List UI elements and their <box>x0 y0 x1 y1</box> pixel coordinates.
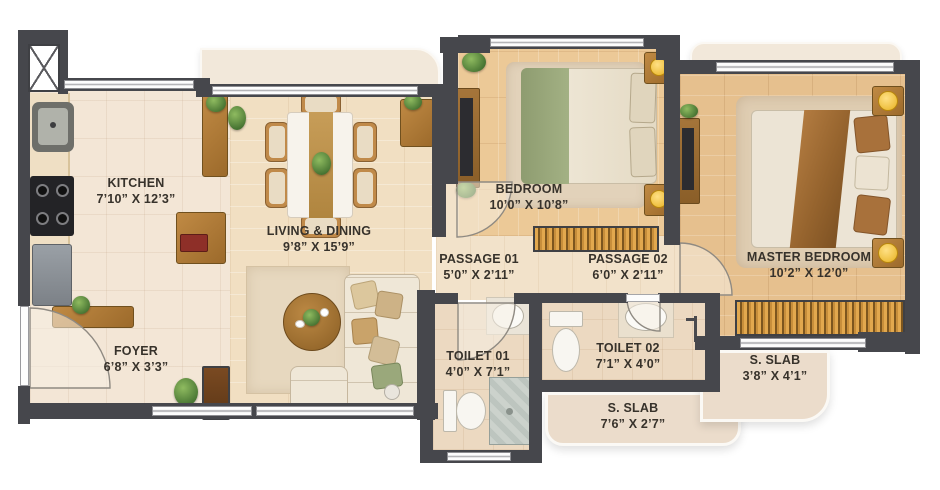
balcony-ledge-living <box>200 48 440 88</box>
dining-chair <box>353 168 377 208</box>
room-label-slab-bottom: S. SLAB 7’6” X 2’7” <box>567 401 699 433</box>
room-name: TOILET 01 <box>446 349 509 364</box>
wall <box>542 380 720 392</box>
stove-burner <box>56 212 69 225</box>
window-bedroom <box>490 38 644 47</box>
washbasin <box>492 303 524 329</box>
window-toilet1 <box>447 452 511 461</box>
shower-head-icon <box>686 318 696 321</box>
room-dims: 7’10” X 12’3” <box>96 192 175 207</box>
microwave <box>180 234 208 252</box>
plant-master <box>680 104 698 118</box>
room-dims: 10’0” X 10’8” <box>489 198 568 213</box>
sofa-pillow <box>374 290 404 320</box>
toilet-bowl <box>456 392 486 430</box>
room-name: PASSAGE 01 <box>439 252 519 267</box>
washbasin <box>625 303 667 331</box>
bed-blanket <box>521 68 569 184</box>
room-name: S. SLAB <box>750 353 801 368</box>
master-pillow <box>854 155 890 191</box>
window-living-bottom <box>256 406 414 416</box>
room-dims: 6’8” X 3’3” <box>104 360 169 375</box>
room-label-master: MASTER BEDROOM 10’2” X 12’0” <box>730 250 888 282</box>
room-name: FOYER <box>114 344 158 359</box>
fridge <box>32 244 72 306</box>
plant-coffee-table <box>303 309 320 326</box>
tv-screen <box>682 128 694 190</box>
entrance-door-leaf <box>20 306 29 386</box>
window-living-top <box>212 86 418 95</box>
room-label-toilet2: TOILET 02 7’1” X 4’0” <box>562 341 694 373</box>
room-dims: 7’1” X 4’0” <box>596 357 661 372</box>
plant-bench <box>72 296 90 314</box>
window-kitchen <box>64 80 194 89</box>
dining-chair <box>353 122 377 162</box>
plant-bedroom <box>462 52 486 72</box>
stove-burner <box>36 184 49 197</box>
room-label-living: LIVING & DINING 9’8” X 15’9” <box>244 224 394 256</box>
dining-chair <box>265 122 289 162</box>
room-dims: 9’8” X 15’9” <box>283 240 355 255</box>
wall <box>905 70 920 354</box>
room-dims: 4’0” X 7’1” <box>446 365 511 380</box>
plant-centerpiece <box>312 152 331 175</box>
room-label-kitchen: KITCHEN 7’10” X 12’3” <box>66 176 206 208</box>
plant-foyer <box>174 378 198 406</box>
shower-drain-icon <box>506 408 513 415</box>
room-dims: 7’6” X 2’7” <box>601 417 666 432</box>
coffee-cup <box>320 308 329 317</box>
window-foyer-bottom <box>152 406 252 416</box>
wardrobe-master <box>735 300 905 336</box>
room-name: PASSAGE 02 <box>588 252 668 267</box>
room-name: TOILET 02 <box>596 341 659 356</box>
plant-living-corner <box>228 106 246 130</box>
room-dims: 5’0” X 2’11” <box>443 268 514 283</box>
room-dims: 10’2” X 12’0” <box>769 266 848 281</box>
foyer-bench <box>52 306 134 328</box>
window-master-bottom <box>740 338 866 348</box>
tv-screen <box>460 98 473 176</box>
room-name: S. SLAB <box>608 401 659 416</box>
room-label-slab-right: S. SLAB 3’8” X 4’1” <box>709 353 841 385</box>
toilet-tank <box>443 390 457 432</box>
door-leaf <box>626 294 660 302</box>
stove-burner <box>36 212 49 225</box>
room-label-passage2: PASSAGE 02 6’0” X 2’11” <box>562 252 694 284</box>
master-pillow <box>853 114 891 153</box>
toilet-tank <box>549 311 583 327</box>
lamp <box>878 91 898 111</box>
window-master-top <box>716 62 894 72</box>
room-dims: 3’8” X 4’1” <box>743 369 808 384</box>
room-name: LIVING & DINING <box>267 224 371 239</box>
bed-pillow <box>629 127 657 178</box>
room-label-foyer: FOYER 6’8” X 3’3” <box>66 344 206 376</box>
wardrobe-bedroom <box>533 226 659 252</box>
room-name: KITCHEN <box>108 176 165 191</box>
shaft-duct <box>28 44 60 92</box>
room-name: BEDROOM <box>496 182 563 197</box>
room-label-bedroom: BEDROOM 10’0” X 10’8” <box>463 182 595 214</box>
master-pillow <box>853 194 891 236</box>
room-name: MASTER BEDROOM <box>747 250 871 265</box>
dining-chair <box>265 168 289 208</box>
wall <box>432 97 446 237</box>
room-dims: 6’0” X 2’11” <box>592 268 663 283</box>
room-label-toilet1: TOILET 01 4’0” X 7’1” <box>412 349 544 381</box>
floor-plan: KITCHEN 7’10” X 12’3” LIVING & DINING 9’… <box>0 0 940 490</box>
side-table <box>384 384 400 400</box>
room-label-passage1: PASSAGE 01 5’0” X 2’11” <box>413 252 545 284</box>
wall <box>542 293 628 303</box>
faucet-icon <box>50 122 56 128</box>
